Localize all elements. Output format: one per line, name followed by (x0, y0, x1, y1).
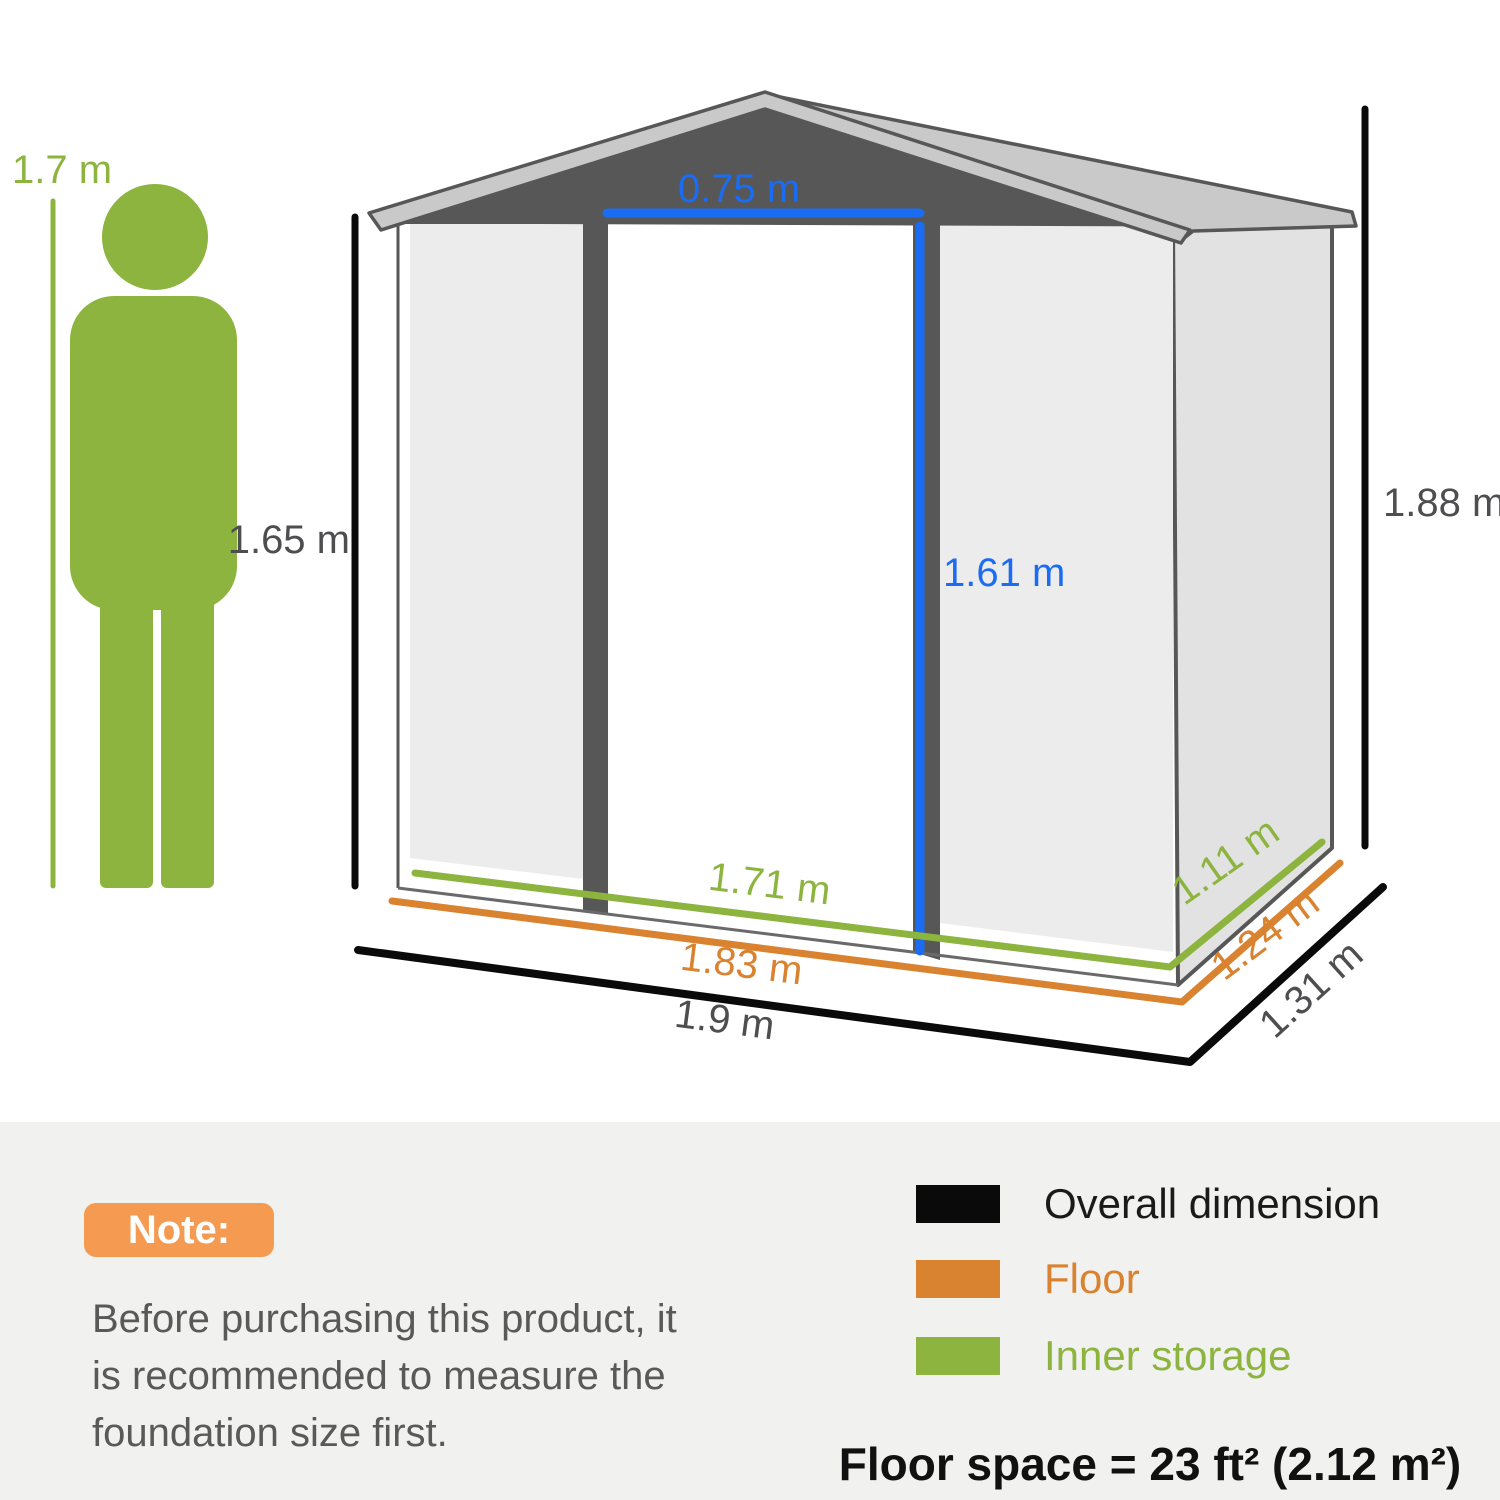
floor-space-label: Floor space = 23 ft² (2.12 m²) (780, 1437, 1500, 1491)
legend-item-inner-storage: Inner storage (916, 1332, 1292, 1380)
page: 1.7 m (0, 0, 1500, 1500)
legend-label-floor: Floor (1044, 1255, 1140, 1303)
note-line: foundation size first. (92, 1405, 852, 1462)
person-head (102, 184, 208, 290)
wall-height-label: 1.65 m (228, 518, 350, 562)
person-leg-right (161, 560, 214, 888)
note-text: Before purchasing this product, it is re… (92, 1291, 852, 1462)
note-line: is recommended to measure the (92, 1348, 852, 1405)
inner-storage-swatch (916, 1337, 1000, 1375)
person-figure: 1.7 m (12, 148, 237, 888)
overall-height-label: 1.88 m (1383, 481, 1500, 525)
person-leg-left (100, 560, 153, 888)
shed-door-jamb-left (583, 220, 608, 914)
shed-door-opening (608, 221, 913, 952)
legend-label-overall: Overall dimension (1044, 1180, 1380, 1228)
floor-width-label: 1.83 m (678, 935, 805, 994)
overall-dimension-swatch (916, 1185, 1000, 1223)
legend-label-inner-storage: Inner storage (1044, 1332, 1292, 1380)
door-height-label: 1.61 m (943, 551, 1065, 595)
note-badge: Note: (84, 1203, 274, 1257)
legend-item-overall: Overall dimension (916, 1180, 1380, 1228)
note-line: Before purchasing this product, it (92, 1291, 852, 1348)
floor-swatch (916, 1260, 1000, 1298)
legend-item-floor: Floor (916, 1255, 1140, 1303)
shed-dimension-diagram: 1.7 m (0, 0, 1500, 1122)
shed-front-panel-left (410, 220, 583, 879)
note-badge-label: Note: (128, 1208, 230, 1253)
person-height-label: 1.7 m (12, 148, 112, 192)
door-width-label: 0.75 m (678, 167, 800, 211)
